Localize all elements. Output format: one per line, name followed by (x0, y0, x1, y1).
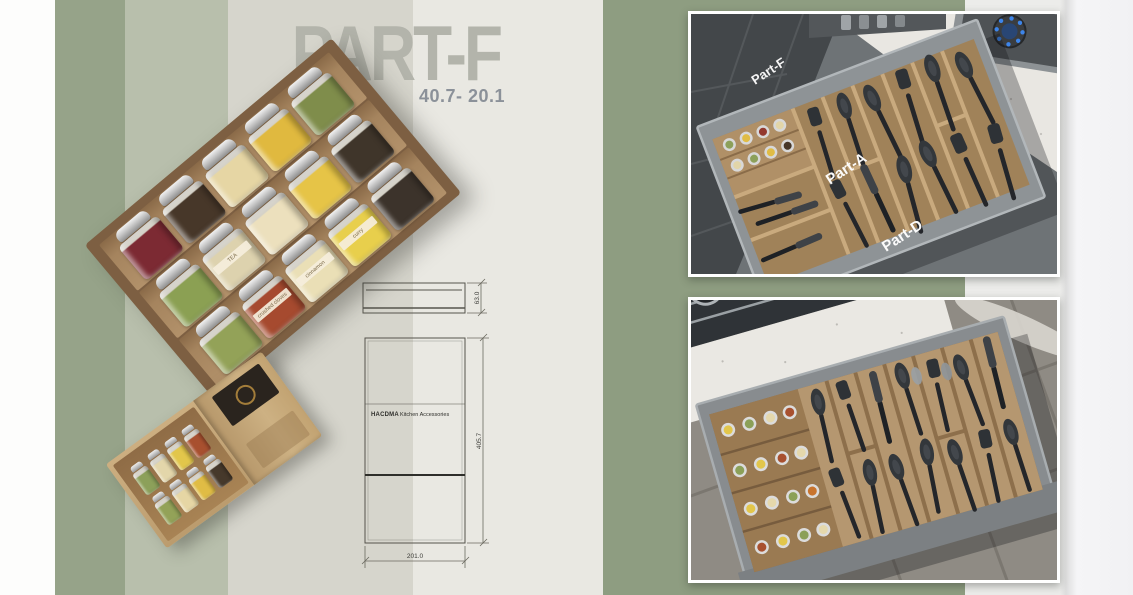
plan-view (365, 338, 465, 543)
technical-drawing: 63.0 HACDMA Kitchen Accessories 405.7 (350, 275, 510, 575)
photo-cutlery-drawer-top (688, 297, 1060, 583)
brand-text: HACDMA (371, 412, 399, 418)
dim-length-value: 405.7 (476, 432, 483, 449)
photo1-scene: Part-F Part-A Part-D (691, 14, 1057, 274)
page-title: PART-F (0, 14, 500, 92)
photo2-scene (691, 300, 1057, 580)
page-subtitle: 40.7- 20.1 (0, 86, 505, 107)
photo-cutlery-drawer-angle: Part-F Part-A Part-D (688, 11, 1060, 277)
side-view (363, 283, 465, 313)
package-logo-icon (232, 381, 260, 409)
title-block: PART-F (0, 14, 500, 78)
catalog-spread: PART-F 40.7- 20.1 TEAcrushed clovescinna… (0, 0, 1133, 595)
dim-width-value: 201.0 (407, 553, 424, 560)
brand-suffix-text: Kitchen Accessories (400, 412, 449, 418)
dim-height-value: 63.0 (474, 291, 481, 304)
